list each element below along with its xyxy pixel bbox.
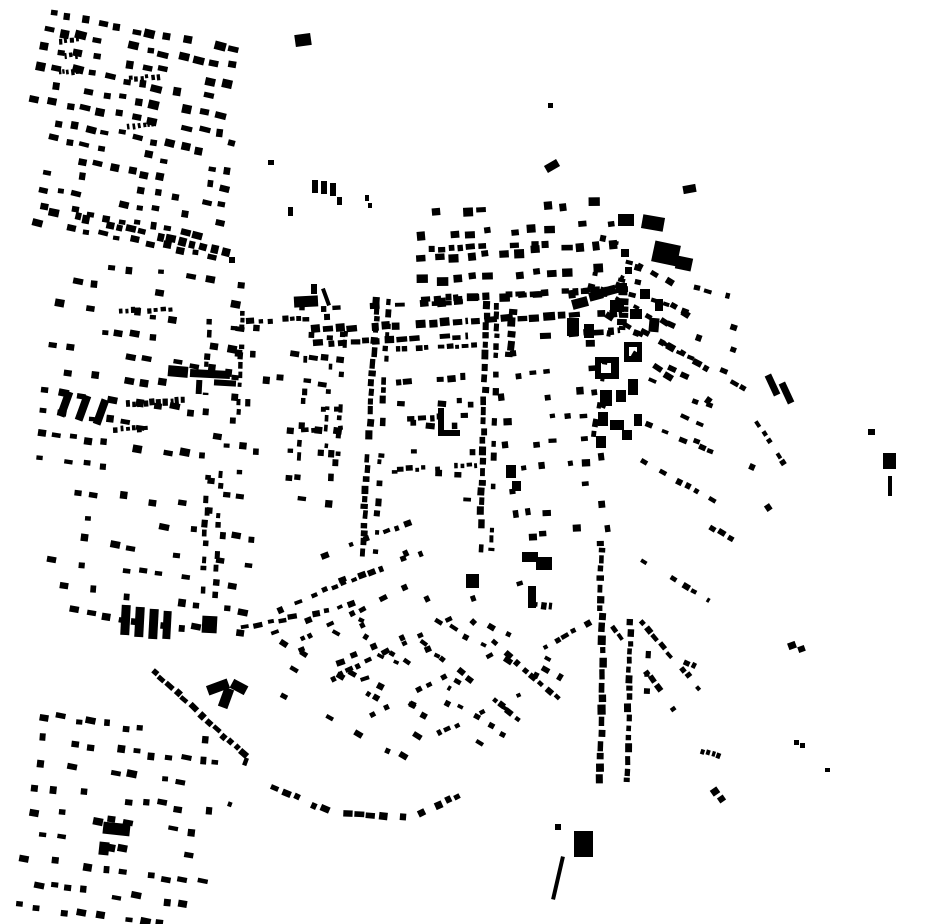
- building-footprint: [505, 631, 512, 637]
- terrace-row: [610, 625, 676, 713]
- terrace-row: [324, 364, 333, 449]
- building-footprint: [134, 219, 141, 225]
- building-footprint: [453, 793, 461, 800]
- building-footprint: [70, 121, 79, 130]
- building-footprint: [493, 343, 498, 350]
- building-footprint: [507, 317, 515, 327]
- building-footprint: [480, 642, 487, 648]
- building-footprint: [597, 310, 605, 317]
- building-footprint: [281, 789, 292, 798]
- building-footprint: [144, 400, 149, 406]
- building-footprint: [505, 352, 513, 358]
- building-footprint: [191, 623, 202, 631]
- building-footprint: [239, 344, 244, 349]
- building-footprint: [797, 645, 806, 653]
- building-footprint: [482, 332, 488, 338]
- building-footprint: [438, 247, 445, 253]
- building-footprint: [288, 207, 293, 216]
- building-footprint: [321, 586, 328, 593]
- building-footprint: [417, 632, 424, 638]
- building-footprint: [421, 296, 431, 302]
- building-footprint: [286, 427, 294, 434]
- building-footprint: [453, 678, 461, 686]
- building-footprint: [153, 308, 157, 312]
- building-footprint: [542, 510, 551, 516]
- building-footprint: [120, 605, 131, 635]
- building-footprint: [202, 199, 212, 206]
- building-footprint: [372, 323, 379, 331]
- building-footprint: [593, 263, 603, 272]
- building-footprint: [78, 158, 87, 166]
- building-footprint: [230, 300, 241, 309]
- building-footprint: [401, 640, 407, 646]
- building-footprint: [682, 184, 696, 194]
- building-footprint: [178, 499, 187, 506]
- building-footprint: [343, 340, 347, 348]
- building-footprint: [139, 567, 148, 573]
- building-footprint: [212, 724, 221, 733]
- building-footprint: [516, 693, 521, 698]
- building-footprint: [79, 104, 91, 112]
- building-footprint: [173, 553, 181, 559]
- building-footprint: [490, 528, 494, 533]
- building-footprint: [447, 685, 452, 691]
- building-footprint: [335, 323, 345, 332]
- building-footprint: [148, 609, 159, 639]
- building-footprint: [592, 418, 599, 427]
- building-footprint: [695, 334, 703, 342]
- building-footprint: [393, 659, 399, 664]
- building-footprint: [59, 809, 66, 815]
- building-footprint: [270, 784, 279, 792]
- building-footprint: [600, 390, 612, 406]
- building-footprint: [214, 41, 227, 52]
- building-footprint: [339, 371, 344, 377]
- building-footprint: [662, 301, 669, 307]
- building-footprint: [494, 333, 499, 338]
- building-footprint: [492, 418, 498, 426]
- building-footprint: [64, 53, 67, 59]
- building-footprint: [63, 370, 72, 377]
- building-footprint: [592, 329, 603, 335]
- building-footprint: [190, 369, 230, 379]
- building-footprint: [360, 548, 365, 556]
- building-footprint: [480, 468, 485, 476]
- building-footprint: [626, 725, 631, 731]
- building-footprint: [39, 408, 46, 414]
- building-footprint: [312, 610, 321, 617]
- building-footprint: [627, 693, 633, 699]
- building-footprint: [506, 465, 516, 478]
- building-footprint: [46, 556, 56, 564]
- building-footprint: [130, 235, 140, 243]
- building-footprint: [59, 582, 68, 590]
- building-footprint: [541, 665, 551, 674]
- building-footprint: [39, 714, 49, 722]
- building-footprint: [242, 757, 249, 766]
- building-footprint: [122, 726, 129, 733]
- building-footprint: [462, 633, 470, 641]
- building-footprint: [540, 333, 551, 339]
- building-footprint: [481, 350, 488, 360]
- building-footprint: [626, 667, 631, 673]
- building-footprint: [80, 533, 88, 541]
- building-footprint: [290, 316, 295, 321]
- building-footprint: [457, 704, 464, 710]
- building-footprint: [294, 33, 312, 47]
- building-footprint: [480, 396, 486, 405]
- building-footprint: [330, 183, 336, 196]
- building-footprint: [188, 702, 199, 713]
- building-footprint: [143, 122, 147, 127]
- building-footprint: [555, 824, 561, 830]
- building-footprint: [365, 195, 369, 201]
- building-footprint: [324, 608, 330, 613]
- building-footprint: [591, 389, 597, 395]
- building-footprint: [330, 676, 337, 683]
- building-footprint: [493, 353, 498, 359]
- building-footprint: [88, 69, 96, 75]
- building-footprint: [155, 172, 164, 181]
- building-footprint: [125, 224, 136, 233]
- building-footprint: [113, 329, 123, 337]
- building-footprint: [179, 447, 190, 457]
- building-footprint: [381, 377, 386, 385]
- building-footprint: [622, 430, 632, 440]
- building-footprint: [112, 23, 120, 31]
- building-footprint: [416, 345, 423, 351]
- building-footprint: [132, 402, 136, 407]
- building-footprint: [482, 387, 489, 393]
- building-footprint: [435, 253, 445, 260]
- building-footprint: [419, 639, 428, 647]
- building-footprint: [349, 610, 356, 617]
- building-footprint: [100, 130, 109, 136]
- building-footprint: [764, 503, 773, 512]
- terrace-row: [64, 52, 78, 59]
- building-footprint: [572, 288, 578, 296]
- building-footprint: [103, 866, 109, 874]
- building-footprint: [301, 398, 306, 404]
- building-footprint: [67, 103, 75, 110]
- building-footprint: [415, 468, 419, 472]
- building-footprint: [461, 464, 465, 469]
- building-footprint: [478, 243, 486, 249]
- building-footprint: [163, 225, 171, 231]
- building-footprint: [479, 544, 484, 552]
- building-footprint: [369, 359, 375, 369]
- building-footprint: [600, 647, 605, 653]
- building-footprint: [487, 722, 495, 730]
- building-footprint: [268, 319, 273, 324]
- building-footprint: [739, 384, 747, 391]
- building-footprint: [425, 422, 435, 429]
- building-footprint: [543, 644, 549, 650]
- terrace-row: [477, 301, 490, 553]
- building-footprint: [434, 618, 443, 626]
- building-footprint: [439, 317, 449, 326]
- building-footprint: [529, 534, 537, 541]
- terrace-row: [644, 651, 651, 694]
- building-footprint: [537, 680, 544, 687]
- building-footprint: [392, 470, 398, 474]
- building-footprint: [158, 269, 164, 274]
- building-footprint: [474, 463, 477, 468]
- building-footprint: [670, 575, 678, 582]
- building-footprint: [574, 831, 593, 857]
- building-footprint: [282, 315, 288, 321]
- building-footprint: [343, 810, 353, 817]
- building-footprint: [367, 419, 374, 427]
- building-footprint: [186, 273, 196, 280]
- building-footprint: [515, 373, 521, 379]
- building-footprint: [71, 206, 79, 213]
- building-footprint: [83, 460, 90, 466]
- building-footprint: [143, 426, 148, 430]
- building-footprint: [103, 92, 111, 99]
- building-footprint: [370, 303, 380, 310]
- building-footprint: [730, 324, 738, 332]
- building-footprint: [468, 402, 474, 408]
- building-footprint: [98, 20, 108, 27]
- building-footprint: [470, 595, 477, 602]
- building-footprint: [529, 314, 540, 322]
- building-footprint: [63, 13, 70, 21]
- terrace-row: [596, 541, 605, 611]
- building-footprint: [469, 618, 477, 626]
- building-footprint: [227, 582, 237, 589]
- building-footprint: [39, 733, 45, 741]
- building-footprint: [693, 284, 700, 290]
- building-footprint: [599, 669, 604, 679]
- building-footprint: [48, 208, 60, 218]
- building-footprint: [164, 138, 175, 148]
- building-footprint: [148, 499, 157, 507]
- building-footprint: [730, 346, 737, 353]
- building-footprint: [93, 53, 101, 60]
- building-footprint: [626, 686, 632, 691]
- building-footprint: [589, 197, 600, 206]
- building-footprint: [481, 428, 487, 435]
- terrace-row: [313, 333, 468, 347]
- terrace-row: [417, 793, 461, 817]
- building-footprint: [38, 187, 48, 194]
- building-footprint: [608, 221, 615, 227]
- building-footprint: [139, 171, 149, 180]
- terrace-row: [119, 307, 173, 314]
- building-footprint: [430, 415, 435, 421]
- building-footprint: [92, 160, 103, 168]
- building-footprint: [447, 375, 456, 383]
- building-footprint: [371, 347, 377, 357]
- building-footprint: [411, 449, 417, 453]
- building-footprint: [189, 363, 199, 370]
- building-footprint: [123, 568, 131, 574]
- building-footprint: [665, 277, 675, 287]
- building-footprint: [89, 492, 98, 499]
- building-footprint: [294, 474, 301, 480]
- building-footprint: [203, 92, 214, 99]
- building-footprint: [37, 429, 46, 437]
- building-footprint: [365, 465, 371, 473]
- building-footprint: [361, 486, 368, 494]
- building-footprint: [326, 389, 331, 394]
- building-footprint: [460, 373, 465, 380]
- building-footprint: [294, 599, 303, 605]
- building-footprint: [415, 320, 425, 329]
- building-footprint: [665, 651, 673, 659]
- building-footprint: [360, 675, 370, 682]
- terrace-row: [640, 458, 717, 504]
- building-footprint: [766, 438, 773, 445]
- building-footprint: [383, 704, 390, 711]
- building-footprint: [620, 283, 627, 292]
- building-footprint: [203, 393, 209, 396]
- building-footprint: [126, 400, 130, 407]
- building-footprint: [219, 733, 227, 741]
- building-footprint: [324, 314, 330, 320]
- building-footprint: [55, 120, 63, 127]
- building-footprint: [200, 756, 206, 764]
- building-footprint: [318, 381, 327, 387]
- building-footprint: [297, 496, 306, 501]
- building-footprint: [644, 625, 653, 635]
- building-footprint: [192, 55, 205, 65]
- building-footprint: [134, 607, 145, 637]
- building-footprint: [479, 709, 486, 715]
- building-footprint: [725, 292, 731, 299]
- building-footprint: [457, 667, 467, 676]
- building-footprint: [610, 420, 624, 430]
- building-footprint: [321, 288, 331, 306]
- building-footprint: [231, 375, 239, 381]
- building-footprint: [481, 407, 486, 415]
- building-footprint: [134, 76, 138, 81]
- building-footprint: [717, 528, 727, 537]
- building-footprint: [343, 331, 348, 337]
- building-footprint: [240, 318, 244, 323]
- building-footprint: [385, 336, 395, 344]
- building-footprint: [354, 811, 364, 817]
- building-footprint: [51, 10, 58, 16]
- building-footprint: [239, 442, 247, 450]
- building-footprint: [583, 619, 592, 628]
- building-footprint: [503, 418, 512, 425]
- building-footprint: [85, 716, 96, 725]
- building-footprint: [214, 379, 236, 386]
- building-footprint: [418, 550, 424, 557]
- building-footprint: [440, 673, 448, 680]
- building-footprint: [85, 516, 91, 521]
- building-footprint: [336, 356, 344, 363]
- building-footprint: [639, 619, 646, 626]
- building-footprint: [137, 401, 142, 407]
- building-footprint: [454, 463, 458, 469]
- building-footprint: [300, 635, 306, 641]
- building-footprint: [457, 245, 463, 252]
- building-footprint: [426, 682, 433, 688]
- building-footprint: [599, 235, 606, 242]
- building-footprint: [311, 296, 317, 305]
- building-footprint: [128, 166, 137, 174]
- building-footprint: [181, 104, 192, 114]
- building-footprint: [90, 585, 96, 593]
- building-footprint: [626, 619, 633, 625]
- building-footprint: [288, 448, 294, 453]
- building-footprint: [212, 592, 218, 599]
- building-footprint: [285, 475, 292, 481]
- building-footprint: [525, 508, 531, 516]
- building-footprint: [280, 693, 288, 701]
- building-footprint: [514, 249, 524, 259]
- building-footprint: [331, 584, 339, 590]
- building-footprint: [70, 434, 77, 439]
- building-footprint: [227, 801, 233, 807]
- building-footprint: [370, 642, 378, 650]
- building-footprint: [302, 388, 307, 395]
- building-footprint: [655, 299, 663, 311]
- building-footprint: [64, 459, 73, 465]
- building-footprint: [541, 289, 549, 296]
- building-footprint: [117, 844, 128, 853]
- building-footprint: [204, 718, 213, 727]
- building-footprint: [237, 470, 243, 475]
- building-footprint: [106, 415, 114, 423]
- building-footprint: [625, 267, 632, 274]
- building-footprint: [531, 241, 538, 247]
- building-footprint: [558, 312, 566, 319]
- building-footprint: [173, 359, 183, 365]
- building-footprint: [461, 413, 468, 418]
- terrace-row: [754, 420, 787, 466]
- building-footprint: [157, 233, 165, 242]
- building-footprint: [547, 270, 557, 277]
- building-footprint: [375, 498, 382, 506]
- terrace-row: [362, 633, 452, 691]
- building-footprint: [492, 697, 498, 703]
- building-footprint: [541, 602, 547, 610]
- building-footprint: [748, 463, 756, 471]
- building-footprint: [81, 215, 90, 225]
- building-footprint: [363, 476, 370, 482]
- building-footprint: [98, 842, 109, 856]
- building-footprint: [440, 333, 451, 339]
- building-footprint: [462, 344, 469, 348]
- building-footprint: [368, 379, 374, 386]
- building-footprint: [437, 377, 444, 382]
- building-footprint: [754, 420, 761, 428]
- building-footprint: [125, 353, 136, 361]
- building-footprint: [448, 254, 458, 263]
- building-footprint: [416, 231, 425, 241]
- building-footprint: [398, 634, 405, 641]
- building-footprint: [35, 61, 46, 71]
- building-footprint: [123, 593, 129, 600]
- terrace-row: [678, 437, 756, 471]
- building-footprint: [406, 465, 413, 471]
- building-footprint: [137, 187, 145, 195]
- building-footprint: [16, 901, 23, 907]
- building-footprint: [79, 172, 86, 180]
- building-footprint: [107, 815, 116, 822]
- building-footprint: [126, 545, 136, 552]
- building-footprint: [241, 624, 249, 629]
- building-footprint: [307, 633, 313, 640]
- building-footprint: [253, 448, 259, 455]
- building-footprint: [199, 126, 211, 134]
- building-footprint: [512, 481, 521, 491]
- building-footprint: [378, 566, 384, 573]
